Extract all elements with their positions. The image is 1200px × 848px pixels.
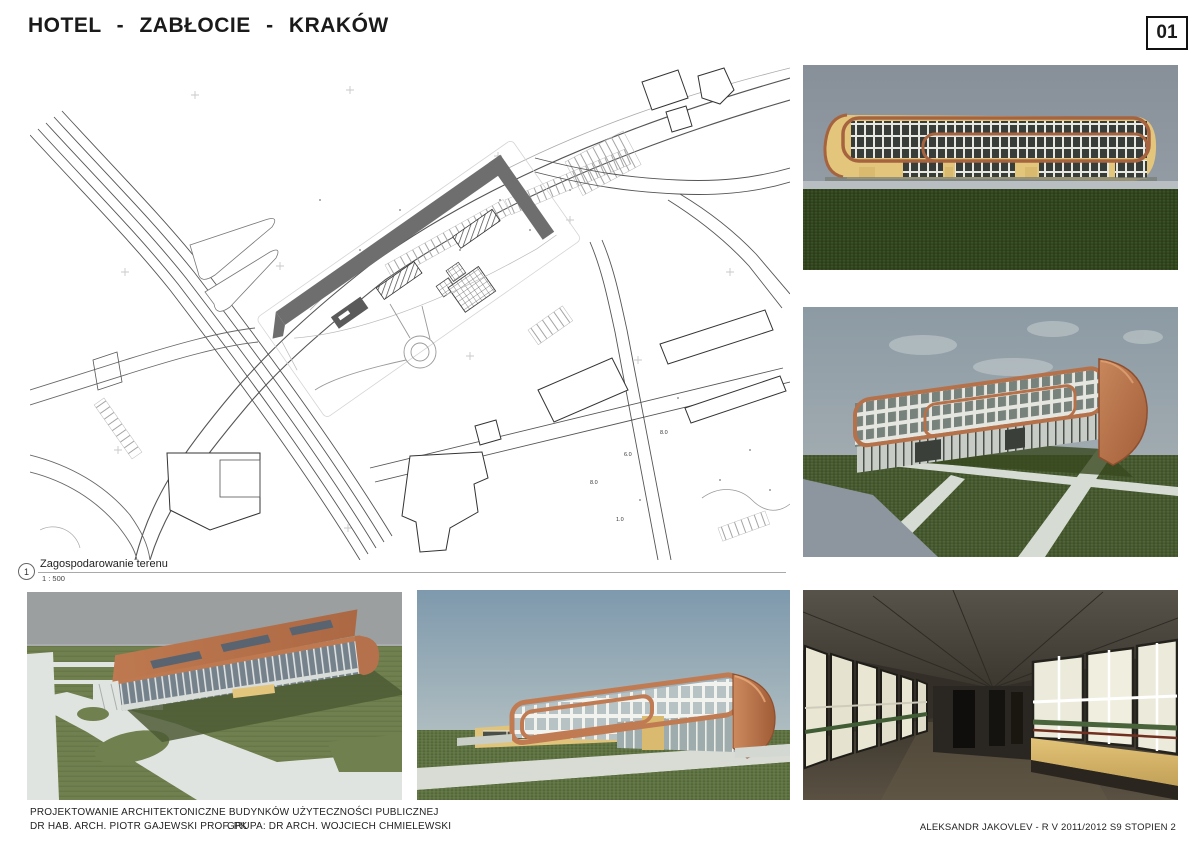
site-plan-drawing: 8.0 6.0 8.0 1.0 (30, 60, 790, 560)
plan-caption: 1 Zagospodarowanie terenu 1 : 500 (16, 560, 786, 586)
render-aerial-view (27, 592, 402, 800)
sheet-number: 01 (1156, 22, 1177, 44)
caption-rule (38, 572, 786, 573)
traffic-islands (190, 219, 278, 312)
plan-annotation: 8.0 (590, 480, 598, 486)
render-street-perspective (417, 590, 790, 800)
plan-annotations: 8.0 6.0 8.0 1.0 (590, 430, 668, 523)
hotel-building-elevation (825, 115, 1157, 181)
footer-author-line: ALEKSANDR JAKOVLEV - R V 2011/2012 S9 ST… (920, 822, 1176, 833)
drawing-title: Zagospodarowanie terenu (40, 558, 168, 570)
existing-buildings (93, 68, 786, 552)
plan-annotation: 1.0 (616, 517, 624, 523)
footer-tutor-line: DR HAB. ARCH. PIOTR GAJEWSKI PROF. PK (30, 821, 247, 832)
landscape-squiggle (702, 490, 790, 511)
footer-group-line: GRUPA: DR ARCH. WOJCIECH CHMIELEWSKI (227, 821, 451, 832)
drawing-scale: 1 : 500 (42, 574, 65, 583)
plan-annotation: 8.0 (660, 430, 668, 436)
footer-course-line: PROJEKTOWANIE ARCHITEKTONICZNE BUDYNKÓW … (30, 807, 439, 818)
sheet-number-badge: 01 (1146, 16, 1188, 50)
plan-annotation: 6.0 (624, 452, 632, 458)
hotel-footprint (256, 139, 582, 418)
page-title: HOTEL - ZABŁOCIE - KRAKÓW (28, 14, 389, 38)
render-front-elevation (803, 65, 1178, 270)
render-perspective-end-cap (803, 307, 1178, 557)
presentation-board: HOTEL - ZABŁOCIE - KRAKÓW 01 (0, 0, 1200, 848)
render-interior-hall (803, 590, 1178, 800)
drawing-number-circle: 1 (18, 563, 35, 580)
